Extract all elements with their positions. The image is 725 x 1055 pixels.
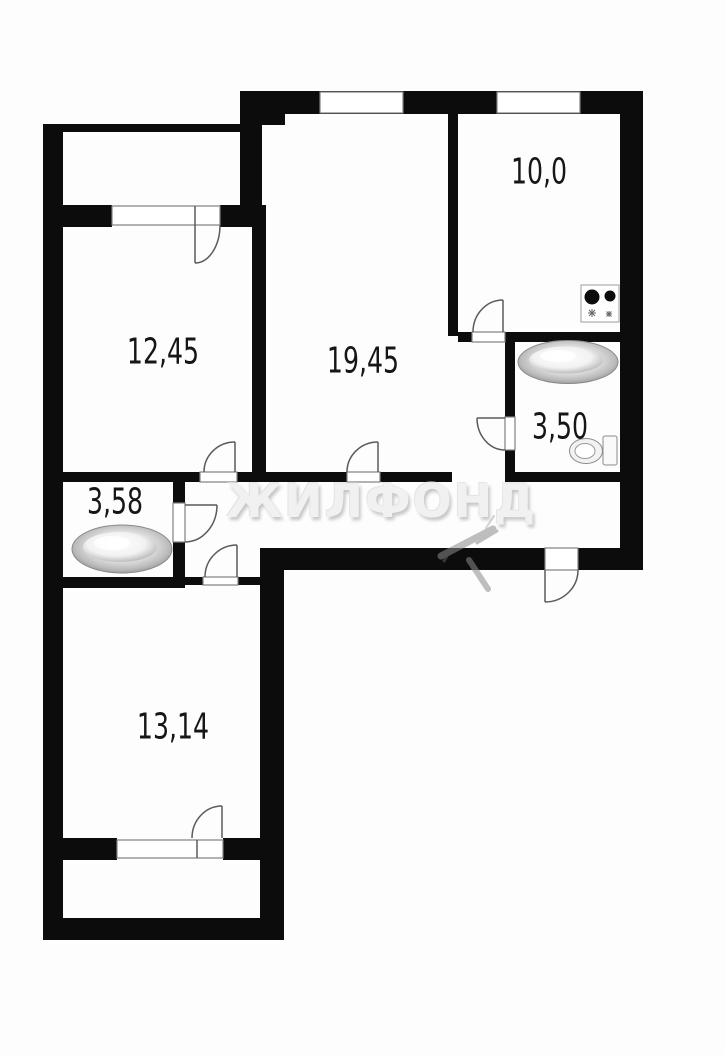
floor-plan: 12,45 19,45 10,0 3,50 3,58 13,14 ЖИЛФОНД [0, 0, 725, 1055]
door-balcony-bottom [192, 806, 222, 838]
door-balcony-top [195, 225, 220, 263]
door-bathroom-left [173, 503, 217, 542]
svg-text:3,58: 3,58 [87, 481, 143, 523]
room-label-10-0: 10,0 [511, 151, 567, 193]
svg-text:19,45: 19,45 [327, 340, 399, 382]
door-room-left [200, 442, 237, 482]
room-label-13-14: 13,14 [137, 706, 209, 748]
door-room-large [347, 442, 380, 482]
window-kitchen [497, 92, 580, 113]
room-label-3-58: 3,58 [87, 481, 143, 523]
room-label-19-45: 19,45 [327, 340, 399, 382]
svg-text:12,45: 12,45 [127, 331, 199, 373]
room-label-3-50: 3,50 [532, 406, 588, 448]
window-balcony-top [112, 206, 220, 225]
door-bathroom-right [477, 417, 515, 450]
stove-icon [581, 285, 619, 322]
window-balcony-bottom [117, 840, 223, 858]
door-entrance [545, 548, 578, 602]
bathtub-icon [518, 341, 618, 384]
svg-text:3,50: 3,50 [532, 406, 588, 448]
door-kitchen [472, 300, 505, 342]
svg-text:10,0: 10,0 [511, 151, 567, 193]
bathtub-icon [72, 525, 172, 573]
window-room-large [320, 92, 403, 113]
door-room-bottom [203, 545, 238, 585]
svg-text:13,14: 13,14 [137, 706, 209, 748]
room-label-12-45: 12,45 [127, 331, 199, 373]
